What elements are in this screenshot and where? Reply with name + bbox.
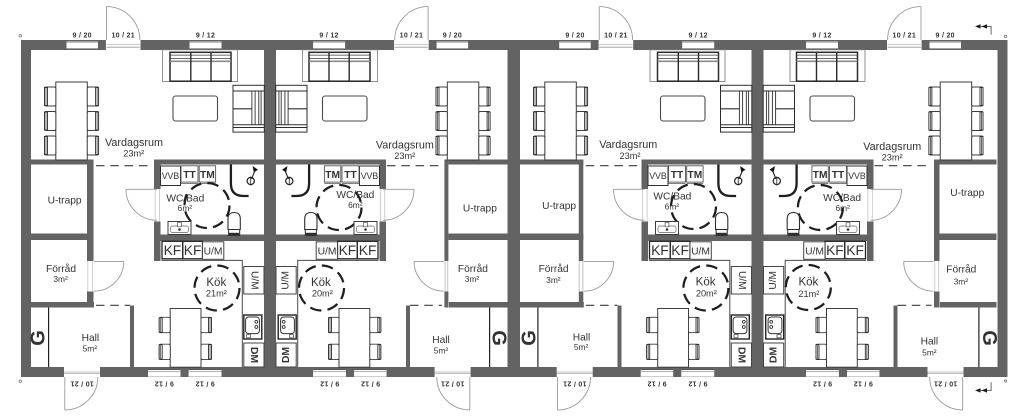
- svg-text:23m²: 23m²: [882, 152, 903, 162]
- svg-text:Förråd: Förråd: [46, 263, 76, 275]
- svg-text:U/M: U/M: [736, 271, 747, 290]
- svg-text:Vardagsrum: Vardagsrum: [105, 137, 163, 149]
- svg-text:21m²: 21m²: [798, 289, 819, 299]
- svg-text:VVB: VVB: [649, 171, 667, 181]
- svg-text:Kök: Kök: [206, 277, 226, 289]
- svg-text:9 / 12: 9 / 12: [854, 379, 873, 386]
- svg-text:23m²: 23m²: [620, 151, 641, 161]
- svg-text:G: G: [28, 330, 50, 346]
- svg-text:U-trapp: U-trapp: [950, 188, 984, 199]
- svg-text:6m²: 6m²: [178, 203, 193, 213]
- svg-text:U/M: U/M: [281, 271, 292, 290]
- svg-text:21m²: 21m²: [206, 289, 227, 299]
- svg-text:10 / 21: 10 / 21: [400, 32, 424, 39]
- svg-text:10 / 21: 10 / 21: [441, 379, 465, 386]
- svg-text:Vardagsrum: Vardagsrum: [599, 139, 657, 151]
- svg-text:G: G: [488, 330, 510, 346]
- svg-text:10 / 21: 10 / 21: [70, 379, 94, 386]
- svg-text:10 / 21: 10 / 21: [893, 32, 917, 39]
- svg-text:5m²: 5m²: [83, 344, 98, 354]
- svg-text:TM: TM: [688, 170, 703, 181]
- svg-text:TT: TT: [832, 170, 845, 181]
- svg-text:DM: DM: [280, 347, 292, 364]
- svg-text:DM: DM: [735, 347, 747, 364]
- svg-text:TM: TM: [200, 170, 215, 181]
- svg-text:9 / 12: 9 / 12: [155, 379, 174, 386]
- svg-text:TM: TM: [325, 170, 340, 181]
- svg-text:KF: KF: [164, 243, 182, 258]
- svg-text:U/M: U/M: [768, 271, 779, 290]
- svg-text:DM: DM: [248, 347, 260, 364]
- svg-text:KF: KF: [359, 243, 377, 258]
- svg-text:KF: KF: [846, 243, 864, 258]
- svg-text:Hall: Hall: [432, 335, 450, 346]
- svg-text:Kök: Kök: [311, 277, 331, 289]
- svg-text:U/M: U/M: [204, 247, 223, 258]
- svg-text:Förråd: Förråd: [539, 263, 569, 275]
- svg-text:9 / 12: 9 / 12: [195, 379, 214, 386]
- svg-text:DM: DM: [768, 347, 780, 364]
- svg-text:TT: TT: [183, 170, 196, 181]
- svg-text:9 / 20: 9 / 20: [443, 32, 462, 39]
- svg-text:10 / 21: 10 / 21: [563, 379, 587, 386]
- svg-text:U-trapp: U-trapp: [463, 204, 497, 215]
- svg-text:10 / 21: 10 / 21: [111, 32, 135, 39]
- svg-text:KF: KF: [671, 243, 689, 258]
- svg-text:Förråd: Förråd: [458, 263, 488, 275]
- svg-text:VVB: VVB: [162, 171, 180, 181]
- svg-text:U/M: U/M: [691, 247, 710, 258]
- svg-text:23m²: 23m²: [394, 151, 415, 161]
- svg-text:9 / 12: 9 / 12: [319, 32, 338, 39]
- svg-text:3m²: 3m²: [954, 276, 969, 286]
- svg-text:9 / 20: 9 / 20: [936, 32, 955, 39]
- svg-text:5m²: 5m²: [434, 346, 449, 356]
- svg-text:G: G: [978, 330, 1000, 346]
- svg-text:9 / 12: 9 / 12: [813, 379, 832, 386]
- svg-text:TM: TM: [813, 170, 828, 181]
- svg-text:Förråd: Förråd: [946, 264, 976, 276]
- svg-text:10 / 21: 10 / 21: [934, 379, 958, 386]
- svg-text:5m²: 5m²: [574, 342, 589, 352]
- svg-text:9 / 12: 9 / 12: [688, 379, 707, 386]
- svg-text:9 / 20: 9 / 20: [565, 32, 584, 39]
- svg-text:U-trapp: U-trapp: [48, 196, 82, 207]
- svg-text:U/M: U/M: [318, 247, 337, 258]
- svg-text:9 / 12: 9 / 12: [647, 379, 666, 386]
- svg-text:23m²: 23m²: [123, 148, 144, 158]
- svg-text:KF: KF: [826, 243, 844, 258]
- svg-text:3m²: 3m²: [53, 274, 68, 284]
- svg-text:9 / 12: 9 / 12: [812, 32, 831, 39]
- svg-text:9 / 12: 9 / 12: [196, 32, 215, 39]
- svg-text:G: G: [518, 330, 540, 346]
- svg-text:10 / 21: 10 / 21: [604, 32, 628, 39]
- svg-text:9 / 20: 9 / 20: [73, 32, 92, 39]
- svg-text:Hall: Hall: [82, 333, 100, 344]
- svg-text:6m²: 6m²: [348, 200, 363, 210]
- svg-text:U-trapp: U-trapp: [542, 201, 576, 212]
- svg-text:Vardagsrum: Vardagsrum: [376, 139, 434, 151]
- svg-text:9 / 12: 9 / 12: [320, 379, 339, 386]
- svg-text:TT: TT: [671, 170, 684, 181]
- svg-text:3m²: 3m²: [546, 275, 561, 285]
- svg-text:KF: KF: [184, 243, 202, 258]
- svg-text:9 / 12: 9 / 12: [689, 32, 708, 39]
- svg-text:6m²: 6m²: [665, 201, 680, 211]
- svg-text:20m²: 20m²: [312, 289, 333, 299]
- svg-text:5m²: 5m²: [922, 347, 937, 357]
- svg-text:KF: KF: [651, 243, 669, 258]
- svg-text:Kök: Kök: [696, 277, 716, 289]
- svg-text:VVB: VVB: [361, 171, 379, 181]
- svg-text:Vardagsrum: Vardagsrum: [863, 141, 921, 153]
- svg-text:9 / 12: 9 / 12: [361, 379, 380, 386]
- svg-text:TT: TT: [344, 170, 357, 181]
- svg-text:VVB: VVB: [848, 171, 866, 181]
- svg-text:20m²: 20m²: [696, 289, 717, 299]
- svg-text:Kök: Kök: [798, 276, 818, 288]
- svg-text:KF: KF: [339, 243, 357, 258]
- svg-text:Hall: Hall: [921, 337, 939, 348]
- svg-text:U/M: U/M: [249, 271, 260, 290]
- svg-text:3m²: 3m²: [465, 274, 480, 284]
- svg-text:U/M: U/M: [805, 247, 824, 258]
- svg-text:6m²: 6m²: [835, 203, 850, 213]
